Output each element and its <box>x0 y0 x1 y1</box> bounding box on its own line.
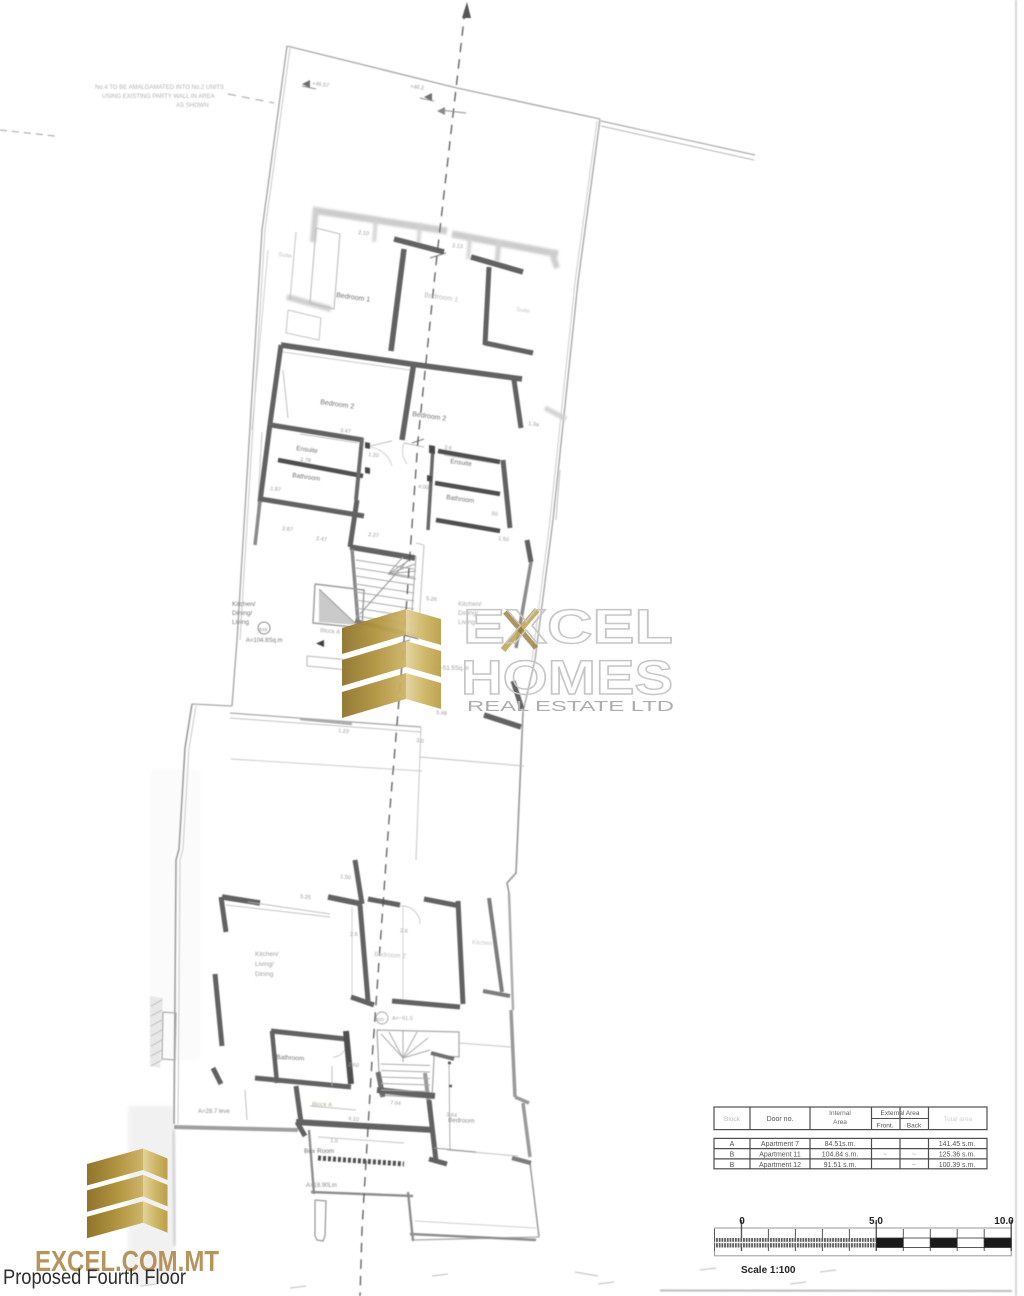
svg-text:Bathroom: Bathroom <box>446 494 475 505</box>
svg-text:Dining: Dining <box>255 971 274 978</box>
svg-text:2.87: 2.87 <box>282 526 293 533</box>
svg-text:~: ~ <box>883 1152 887 1159</box>
svg-text:Living/: Living/ <box>255 961 274 968</box>
svg-text:Ensuite: Ensuite <box>296 445 319 455</box>
svg-text:~: ~ <box>912 1162 916 1169</box>
svg-text:B: B <box>730 1162 735 1169</box>
svg-text:REAL ESTATE LTD: REAL ESTATE LTD <box>467 698 674 715</box>
svg-text:B19: B19 <box>259 627 268 632</box>
svg-text:3.0: 3.0 <box>416 738 424 745</box>
svg-text:Bedroom 1: Bedroom 1 <box>336 292 371 304</box>
svg-text:Suite: Suite <box>278 252 293 260</box>
svg-text:Bathroom: Bathroom <box>276 1054 305 1062</box>
svg-text:B: B <box>730 1152 735 1159</box>
svg-text:100.39 s.m.: 100.39 s.m. <box>939 1162 976 1169</box>
svg-text:5.26: 5.26 <box>426 596 437 603</box>
svg-text:2.6: 2.6 <box>400 928 408 935</box>
svg-text:Area: Area <box>833 1119 847 1126</box>
svg-text:Living: Living <box>232 619 249 626</box>
svg-text:2.6: 2.6 <box>350 932 358 938</box>
svg-text:1.23: 1.23 <box>338 728 349 735</box>
svg-text:5.48: 5.48 <box>436 710 447 717</box>
svg-text:B20: B20 <box>376 1017 385 1022</box>
svg-text:7.04: 7.04 <box>390 1100 401 1107</box>
svg-text:+46.2: +46.2 <box>410 84 425 92</box>
svg-text:External Area: External Area <box>880 1110 919 1117</box>
svg-text:4.00: 4.00 <box>418 484 429 491</box>
svg-text:Apartment 7: Apartment 7 <box>761 1141 799 1148</box>
svg-text:Kitchen/: Kitchen/ <box>255 951 279 958</box>
svg-text:Bedroom 1: Bedroom 1 <box>424 292 459 304</box>
svg-text:Front.: Front. <box>877 1123 894 1130</box>
svg-text:Total area: Total area <box>944 1116 973 1123</box>
svg-text:1.50: 1.50 <box>498 536 509 543</box>
svg-text:Suite: Suite <box>516 307 531 315</box>
svg-text:Scale 1:100: Scale 1:100 <box>741 1265 796 1276</box>
svg-text:Kitchen/: Kitchen/ <box>232 601 256 608</box>
svg-text:Dining/: Dining/ <box>232 610 252 617</box>
svg-text:0: 0 <box>739 1216 745 1227</box>
svg-text:84.51s.m.: 84.51s.m. <box>825 1141 856 1148</box>
svg-text:Block A: Block A <box>320 628 341 636</box>
svg-text:Box Room: Box Room <box>304 1148 334 1155</box>
svg-text:104.84 s.m.: 104.84 s.m. <box>822 1152 859 1159</box>
svg-text:91.51 s.m.: 91.51 s.m. <box>824 1162 857 1169</box>
svg-text:1.0: 1.0 <box>330 1138 338 1145</box>
svg-text:5.25: 5.25 <box>300 894 311 901</box>
svg-text:2.27: 2.27 <box>368 532 379 539</box>
svg-text:2.13: 2.13 <box>452 243 463 250</box>
svg-text:Bedroom 2: Bedroom 2 <box>320 399 355 411</box>
svg-text:1.20: 1.20 <box>368 452 379 459</box>
svg-text:+46.57: +46.57 <box>312 81 330 89</box>
svg-text:Proposed Fourth Floor: Proposed Fourth Floor <box>3 1266 186 1289</box>
svg-text:5.0: 5.0 <box>869 1216 883 1227</box>
svg-text:Apartment 11: Apartment 11 <box>759 1152 801 1159</box>
svg-text:2.10: 2.10 <box>358 230 369 237</box>
svg-text:EXCEL: EXCEL <box>463 601 673 654</box>
svg-text:A=~91.5: A=~91.5 <box>392 1016 413 1022</box>
svg-text:125.36 s.m.: 125.36 s.m. <box>939 1152 976 1159</box>
svg-text:A=104.8Sq.m: A=104.8Sq.m <box>246 638 283 644</box>
svg-text:Bathroom: Bathroom <box>292 472 321 483</box>
svg-text:Internal: Internal <box>829 1110 851 1117</box>
svg-text:AS SHOWN: AS SHOWN <box>176 103 209 109</box>
svg-text:Block A: Block A <box>312 1102 332 1109</box>
svg-text:Bedroom 2: Bedroom 2 <box>374 951 407 960</box>
svg-text:3.6: 3.6 <box>444 445 452 452</box>
svg-text:141.45 s.m.: 141.45 s.m. <box>939 1141 976 1148</box>
svg-text:A=28.7 leve: A=28.7 leve <box>198 1109 231 1115</box>
svg-text:2.47: 2.47 <box>316 536 327 543</box>
svg-text:.50: .50 <box>490 511 498 518</box>
svg-text:USING EXISTING PARTY WALL IN A: USING EXISTING PARTY WALL IN AREA <box>102 94 215 100</box>
svg-text:Apartment 12: Apartment 12 <box>759 1162 801 1169</box>
svg-text:A: A <box>730 1141 735 1148</box>
svg-text:Block: Block <box>724 1116 741 1123</box>
svg-text:~: ~ <box>912 1152 916 1159</box>
svg-text:10.0: 10.0 <box>994 1216 1014 1227</box>
svg-text:Back: Back <box>907 1123 922 1130</box>
svg-text:Bedroom 2: Bedroom 2 <box>412 411 447 423</box>
svg-text:No.4 TO BE AMALGAMATED INTO No: No.4 TO BE AMALGAMATED INTO No.2 UNITS <box>95 85 224 91</box>
svg-text:A=18.90Lm: A=18.90Lm <box>306 1183 337 1189</box>
svg-text:Kitchen: Kitchen <box>472 940 492 947</box>
svg-text:1.3a: 1.3a <box>528 421 540 428</box>
svg-text:Door no.: Door no. <box>767 1116 794 1123</box>
svg-text:1.50: 1.50 <box>340 874 351 881</box>
svg-text:1.97: 1.97 <box>270 486 281 493</box>
